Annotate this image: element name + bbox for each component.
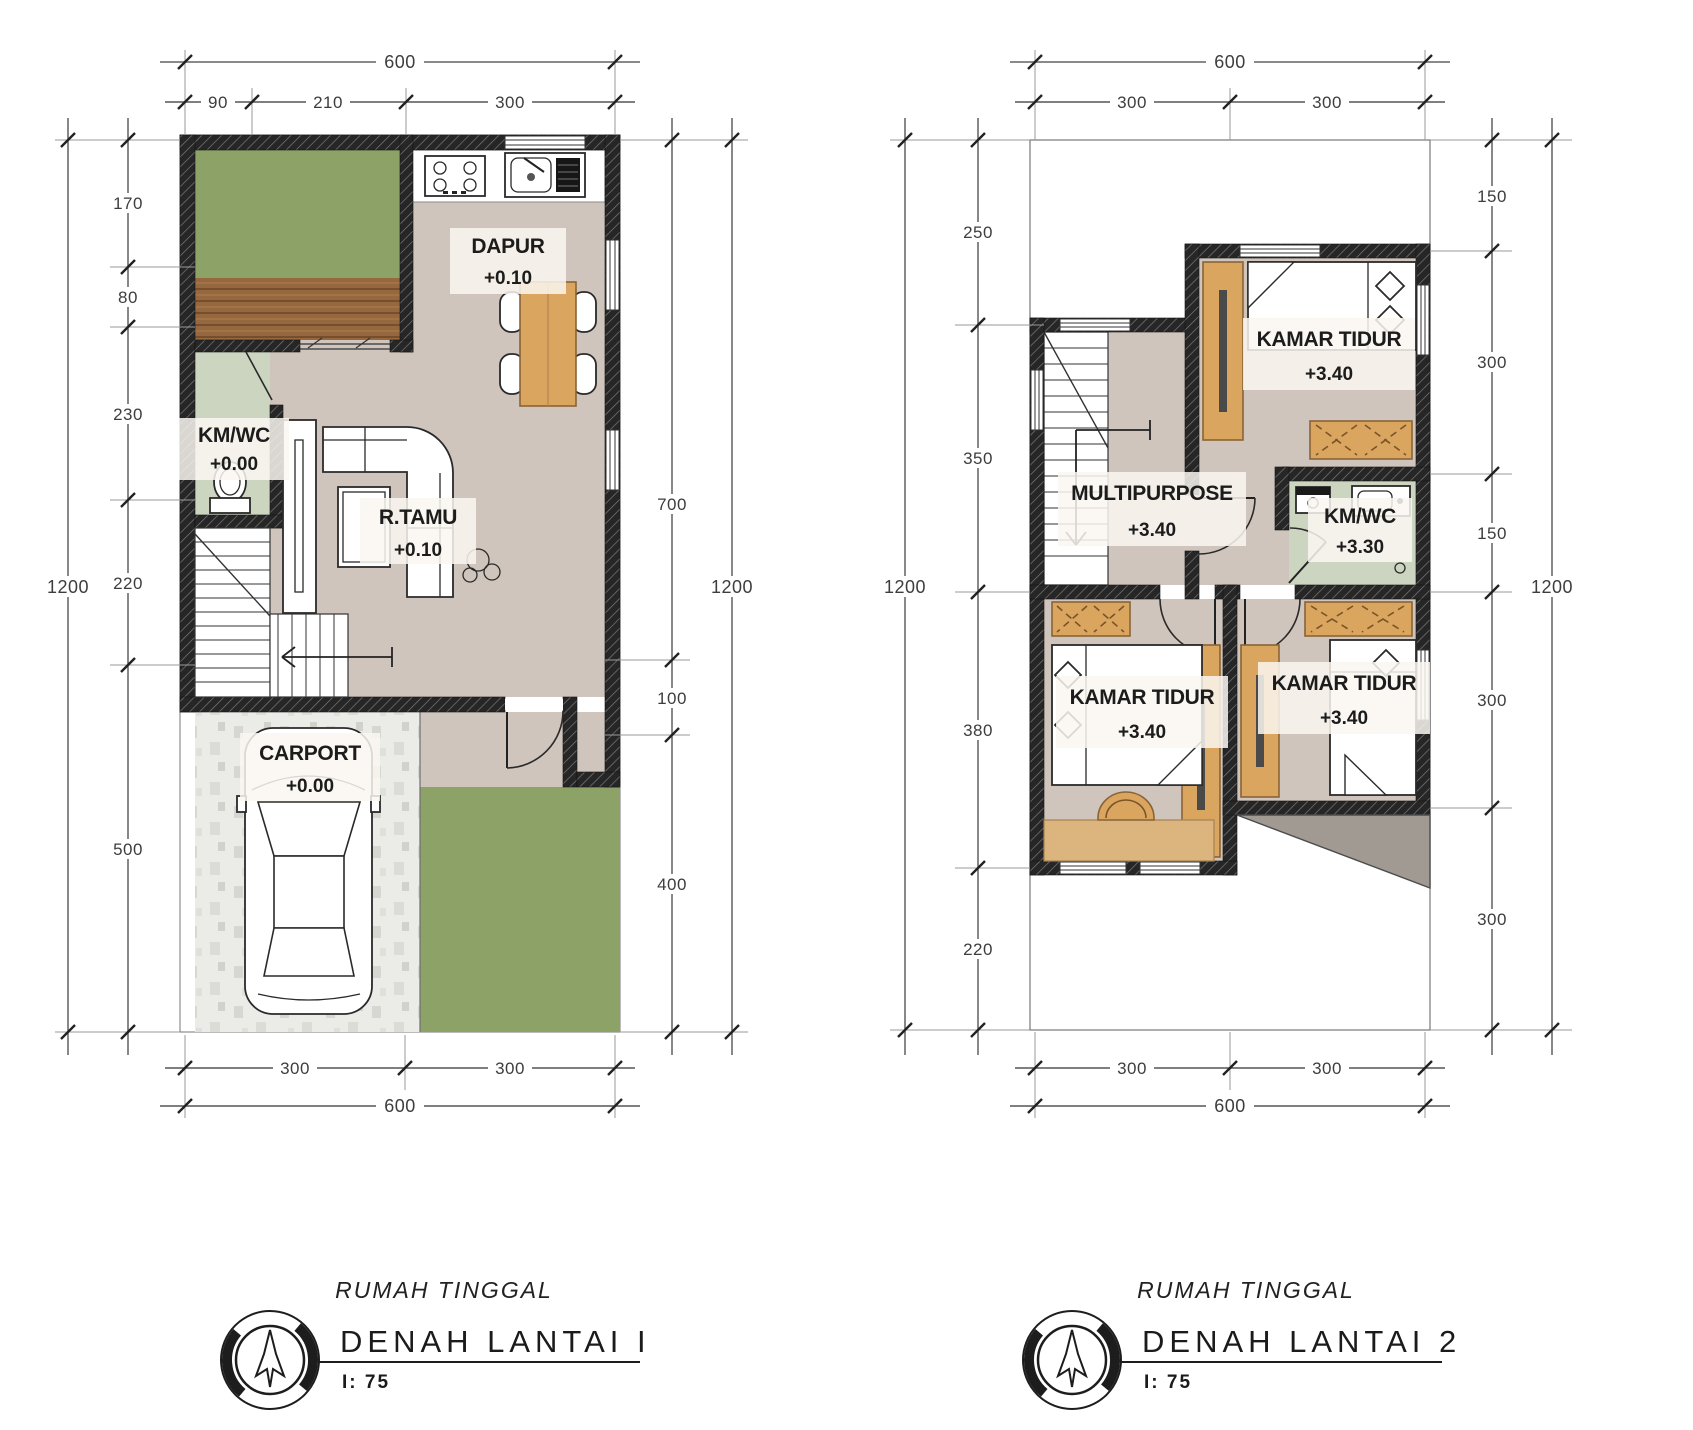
dim-p2-left-seg2: 350 <box>963 449 993 468</box>
dim-p1-bottom-seg1: 300 <box>280 1059 310 1078</box>
wall2-kmwc-top <box>1282 467 1430 481</box>
wall2-mid-a <box>1030 585 1160 599</box>
north-star-icon-2 <box>1058 1330 1086 1387</box>
room-level-bedroom2: +3.40 <box>1118 722 1166 743</box>
dim-p2-top-total: 600 <box>1214 52 1246 72</box>
room-label-multipurpose: MULTIPURPOSE <box>1071 482 1233 505</box>
wall-entry-pillar <box>563 697 577 787</box>
scale-label-1: I: 75 <box>342 1372 390 1393</box>
dim-p2-right-total: 1200 <box>1531 577 1573 597</box>
dim-p2-right-seg4: 300 <box>1477 691 1507 710</box>
plan-2: KAMAR TIDUR +3.40 MULTIPURPOSE +3.40 KM/… <box>878 50 1579 1118</box>
title-block-2: RUMAH TINGGAL DENAH LANTAI 2 I: 75 <box>1011 1277 1461 1421</box>
dim-p1-left-total: 1200 <box>47 577 89 597</box>
scale-label-2: I: 75 <box>1144 1372 1192 1393</box>
title-block-1: RUMAH TINGGAL DENAH LANTAI I I: 75 <box>209 1277 650 1421</box>
garden-area <box>195 150 400 278</box>
dim-p1-bottom-total: 600 <box>384 1096 416 1116</box>
dim-p2-left-seg3: 380 <box>963 721 993 740</box>
dim-p2-bottom-seg2: 300 <box>1312 1059 1342 1078</box>
x-wardrobe-bed3 <box>1305 602 1412 636</box>
wall-kitchen-divider <box>400 135 413 352</box>
room-label-dapur: DAPUR <box>471 235 544 258</box>
dim-p2-left-seg1: 250 <box>963 223 993 242</box>
dim-p1-right-seg3: 400 <box>657 875 687 894</box>
room-level-kmwc2: +3.30 <box>1336 537 1384 558</box>
wall-lawn-top <box>577 772 620 787</box>
wall-deck-left <box>195 340 300 352</box>
x-wardrobe-bed1 <box>1310 421 1412 459</box>
dim-p2-top-seg2: 300 <box>1312 93 1342 112</box>
wall-front <box>180 697 505 712</box>
dim-p2-left-seg4: 220 <box>963 940 993 959</box>
room-label-rtamu: R.TAMU <box>379 506 457 529</box>
room-level-kmwc: +0.00 <box>210 454 258 475</box>
dim-p1-top-total: 600 <box>384 52 416 72</box>
wall2-mid-c <box>1295 585 1430 599</box>
wall-kmwc-bottom <box>195 515 283 528</box>
dim-p1-right-seg2: 100 <box>657 689 687 708</box>
dim-p2-right-seg3: 150 <box>1477 524 1507 543</box>
lawn-area <box>420 787 620 1032</box>
plan-title-1: DENAH LANTAI I <box>340 1324 651 1359</box>
deck-area <box>195 278 400 340</box>
dim-p1-left-seg5: 500 <box>113 840 143 859</box>
dim-p1-top-seg3: 300 <box>495 93 525 112</box>
room-level-rtamu: +0.10 <box>394 540 442 561</box>
plan-title-2: DENAH LANTAI 2 <box>1142 1324 1461 1359</box>
dim-p2-right-seg1: 150 <box>1477 187 1507 206</box>
sink-icon <box>505 153 585 197</box>
dim-p2-bottom-seg1: 300 <box>1117 1059 1147 1078</box>
compass-icon <box>209 1299 330 1420</box>
dim-p1-top-seg2: 210 <box>313 93 343 112</box>
wall2-center-vert-a <box>1185 244 1199 495</box>
plan-sheet: DAPUR +0.10 KM/WC +0.00 R.TAMU +0.10 CAR… <box>0 0 1693 1430</box>
dim-p1-bottom-seg2: 300 <box>495 1059 525 1078</box>
room-label-bedroom2: KAMAR TIDUR <box>1070 686 1215 709</box>
room-level-bedroom1: +3.40 <box>1305 364 1353 385</box>
room-label-kmwc: KM/WC <box>198 424 270 447</box>
dim-p2-right-seg2: 300 <box>1477 353 1507 372</box>
dim-p2-bottom-total: 600 <box>1214 1096 1246 1116</box>
dim-p1-top-seg1: 90 <box>208 93 228 112</box>
room-label-kmwc2: KM/WC <box>1324 505 1396 528</box>
wardrobe-bed1 <box>1203 262 1243 440</box>
room-level-dapur: +0.10 <box>484 268 532 289</box>
floor-plan-drawing: DAPUR +0.10 KM/WC +0.00 R.TAMU +0.10 CAR… <box>0 0 1693 1430</box>
room-label-bedroom3: KAMAR TIDUR <box>1272 672 1417 695</box>
room-level-bedroom3: +3.40 <box>1320 708 1368 729</box>
dim-p1-right-total: 1200 <box>711 577 753 597</box>
roof-triangle <box>1237 815 1430 888</box>
room-label-bedroom1: KAMAR TIDUR <box>1257 328 1402 351</box>
wall2-kmwc-left-a <box>1275 467 1289 530</box>
room-label-carport: CARPORT <box>259 742 361 765</box>
plan-1: DAPUR +0.10 KM/WC +0.00 R.TAMU +0.10 CAR… <box>41 50 759 1118</box>
wall2-center-vert-b <box>1185 551 1199 599</box>
dim-p1-left-seg4: 220 <box>113 574 143 593</box>
room-level-multipurpose: +3.40 <box>1128 520 1176 541</box>
north-star-icon <box>256 1330 284 1387</box>
stove-icon <box>425 156 485 196</box>
wood-floor-strip <box>1044 820 1214 861</box>
dim-p1-right-seg1: 700 <box>657 495 687 514</box>
dim-p2-top-seg1: 300 <box>1117 93 1147 112</box>
compass-icon-2 <box>1011 1299 1132 1420</box>
room-level-carport: +0.00 <box>286 776 334 797</box>
wall2-bed3-bottom <box>1223 801 1430 815</box>
dim-p2-right-seg5: 300 <box>1477 910 1507 929</box>
project-title-1: RUMAH TINGGAL <box>335 1277 553 1303</box>
project-title-2: RUMAH TINGGAL <box>1137 1277 1355 1303</box>
x-wardrobe-bed2 <box>1052 602 1130 636</box>
dim-p1-left-seg3: 230 <box>113 405 143 424</box>
dim-p1-left-seg1: 170 <box>113 194 143 213</box>
dim-p1-left-seg2: 80 <box>118 288 138 307</box>
wall-deck-right <box>390 340 413 352</box>
dim-p2-left-total: 1200 <box>884 577 926 597</box>
